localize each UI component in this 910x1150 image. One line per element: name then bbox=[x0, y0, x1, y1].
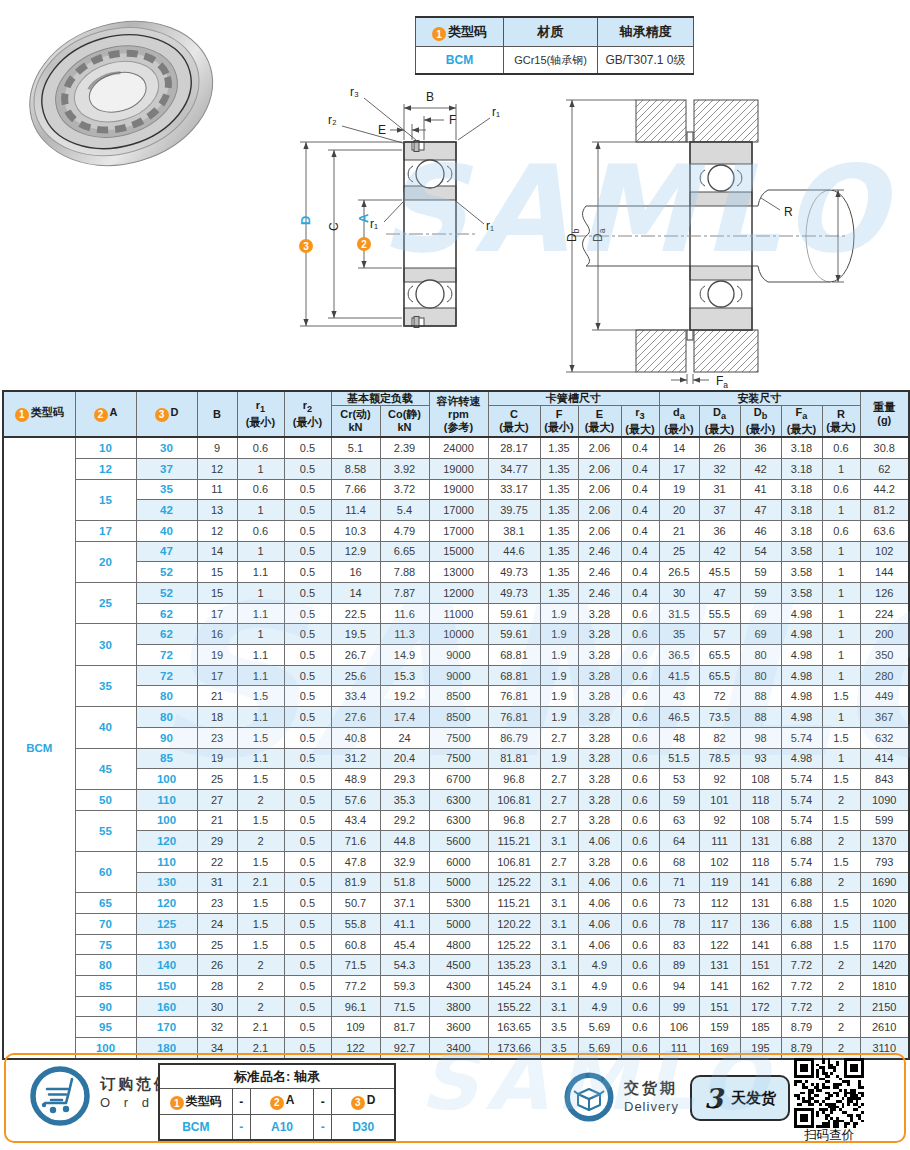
spec-value-cell: 1.5 bbox=[822, 914, 860, 935]
d-value-cell: 30 bbox=[136, 437, 197, 458]
table-row: 801402620.571.554.34500135.233.14.90.689… bbox=[3, 955, 909, 976]
table-row: 72191.10.526.714.9900068.811.93.280.636.… bbox=[3, 645, 909, 666]
spec-value-cell: 131 bbox=[699, 955, 740, 976]
info-material: GCr15(轴承钢) bbox=[504, 47, 598, 75]
spec-value-cell: 0.5 bbox=[284, 872, 331, 893]
spec-value-cell: 55.8 bbox=[331, 914, 380, 935]
spec-value-cell: 102 bbox=[699, 851, 740, 872]
d-value-cell: 72 bbox=[136, 665, 197, 686]
type-info-table: 1类型码 材质 轴承精度 BCM GCr15(轴承钢) GB/T307.1 0级 bbox=[415, 16, 694, 75]
spec-value-cell: 88 bbox=[740, 686, 781, 707]
spec-value-cell: 1090 bbox=[860, 789, 909, 810]
spec-value-cell: 59 bbox=[740, 562, 781, 583]
spec-value-cell: 7.72 bbox=[781, 955, 822, 976]
spec-value-cell: 125.22 bbox=[488, 872, 540, 893]
dim-label-Fa: Fa bbox=[716, 374, 728, 388]
spec-value-cell: 0.5 bbox=[284, 769, 331, 790]
spec-value-cell: 2 bbox=[822, 976, 860, 997]
table-row: 1740120.60.510.34.791700038.11.352.060.4… bbox=[3, 520, 909, 541]
spec-value-cell: 69 bbox=[740, 603, 781, 624]
d-value-cell: 100 bbox=[136, 769, 197, 790]
spec-value-cell: 32 bbox=[699, 458, 740, 479]
spec-value-cell: 0.6 bbox=[621, 914, 659, 935]
spec-value-cell: 2 bbox=[822, 872, 860, 893]
spec-value-cell: 108 bbox=[740, 810, 781, 831]
spec-value-cell: 151 bbox=[740, 955, 781, 976]
dim-label-Db: Db bbox=[565, 228, 581, 242]
spec-value-cell: 0.6 bbox=[237, 437, 284, 458]
spec-value-cell: 162 bbox=[740, 976, 781, 997]
spec-value-cell: 0.5 bbox=[284, 458, 331, 479]
spec-value-cell: 5.74 bbox=[781, 727, 822, 748]
a-value-cell: 45 bbox=[75, 748, 136, 789]
spec-value-cell: 2.46 bbox=[578, 562, 621, 583]
spec-value-cell: 0.6 bbox=[621, 810, 659, 831]
spec-value-cell: 2.46 bbox=[578, 541, 621, 562]
spec-value-cell: 0.6 bbox=[621, 686, 659, 707]
d-value-cell: 52 bbox=[136, 583, 197, 604]
spec-value-cell: 19 bbox=[197, 645, 237, 666]
spec-value-cell: 3.28 bbox=[578, 727, 621, 748]
spec-value-cell: 0.5 bbox=[284, 583, 331, 604]
spec-value-cell: 120.22 bbox=[488, 914, 540, 935]
table-row: 1202920.571.644.85600115.213.14.060.6641… bbox=[3, 831, 909, 852]
spec-value-cell: 3.18 bbox=[781, 437, 822, 458]
spec-value-cell: 1.1 bbox=[237, 707, 284, 728]
dim-label-E: E bbox=[378, 123, 386, 137]
spec-value-cell: 7.88 bbox=[380, 562, 429, 583]
spec-value-cell: 77.2 bbox=[331, 976, 380, 997]
table-row: 75130251.50.560.845.44800125.223.14.060.… bbox=[3, 934, 909, 955]
spec-value-cell: 1 bbox=[822, 707, 860, 728]
spec-value-cell: 5300 bbox=[429, 893, 488, 914]
d-value-cell: 62 bbox=[136, 603, 197, 624]
spec-table-header: 1类型码 2A 3D B r1(最小) r2(最小) 基本额定负载 容许转速rp… bbox=[3, 391, 909, 437]
spec-value-cell: 0.5 bbox=[284, 562, 331, 583]
spec-value-cell: 11.6 bbox=[380, 603, 429, 624]
spec-value-cell: 45.4 bbox=[380, 934, 429, 955]
spec-value-cell: 185 bbox=[740, 1017, 781, 1038]
table-row: 12371210.58.583.921900034.771.352.060.41… bbox=[3, 458, 909, 479]
a-value-cell: 30 bbox=[75, 624, 136, 665]
spec-value-cell: 1.5 bbox=[822, 810, 860, 831]
dim-label-r1-right: r₁ bbox=[486, 219, 494, 233]
delivery-days-label: 天发货 bbox=[731, 1089, 776, 1108]
spec-value-cell: 96.8 bbox=[488, 769, 540, 790]
spec-value-cell: 1100 bbox=[860, 914, 909, 935]
spec-value-cell: 0.5 bbox=[284, 851, 331, 872]
spec-value-cell: 51.8 bbox=[380, 872, 429, 893]
a-value-cell: 12 bbox=[75, 458, 136, 479]
spec-value-cell: 20.4 bbox=[380, 748, 429, 769]
spec-value-cell: 2 bbox=[237, 996, 284, 1017]
spec-value-cell: 14 bbox=[659, 437, 699, 458]
spec-value-cell: 80 bbox=[740, 665, 781, 686]
d-value-cell: 120 bbox=[136, 831, 197, 852]
a-value-cell: 40 bbox=[75, 707, 136, 748]
spec-value-cell: 0.6 bbox=[621, 769, 659, 790]
a-value-cell: 25 bbox=[75, 583, 136, 624]
bearing-photo bbox=[14, 8, 229, 178]
spec-value-cell: 72 bbox=[699, 686, 740, 707]
spec-value-cell: 35 bbox=[659, 624, 699, 645]
badge-3-icon: 3 bbox=[155, 408, 169, 422]
spec-value-cell: 89 bbox=[659, 955, 699, 976]
spec-value-cell: 0.6 bbox=[621, 1017, 659, 1038]
spec-value-cell: 126 bbox=[860, 583, 909, 604]
spec-value-cell: 17000 bbox=[429, 520, 488, 541]
spec-value-cell: 15 bbox=[197, 583, 237, 604]
spec-value-cell: 65.5 bbox=[699, 665, 740, 686]
spec-value-cell: 1.9 bbox=[540, 686, 578, 707]
spec-value-cell: 13000 bbox=[429, 562, 488, 583]
spec-value-cell: 0.6 bbox=[621, 707, 659, 728]
spec-value-cell: 0.5 bbox=[284, 976, 331, 997]
spec-value-cell: 63.6 bbox=[860, 520, 909, 541]
table-row: 421310.511.45.41700039.751.352.060.42037… bbox=[3, 500, 909, 521]
spec-value-cell: 9 bbox=[197, 437, 237, 458]
spec-value-cell: 34.77 bbox=[488, 458, 540, 479]
spec-value-cell: 2610 bbox=[860, 1017, 909, 1038]
spec-value-cell: 17 bbox=[197, 665, 237, 686]
table-row: 4080181.10.527.617.4850076.811.93.280.64… bbox=[3, 707, 909, 728]
spec-value-cell: 11 bbox=[197, 479, 237, 500]
spec-value-cell: 24000 bbox=[429, 437, 488, 458]
spec-value-cell: 3.1 bbox=[540, 934, 578, 955]
spec-value-cell: 106.81 bbox=[488, 789, 540, 810]
spec-value-cell: 2 bbox=[237, 955, 284, 976]
spec-value-cell: 2.7 bbox=[540, 769, 578, 790]
d-value-cell: 80 bbox=[136, 686, 197, 707]
svg-text:2: 2 bbox=[361, 239, 367, 250]
spec-value-cell: 1.5 bbox=[237, 810, 284, 831]
spec-value-cell: 2.7 bbox=[540, 851, 578, 872]
spec-value-cell: 131 bbox=[740, 893, 781, 914]
spec-value-cell: 47 bbox=[740, 500, 781, 521]
spec-value-cell: 3.1 bbox=[540, 914, 578, 935]
spec-value-cell: 2.7 bbox=[540, 810, 578, 831]
spec-value-cell: 6000 bbox=[429, 851, 488, 872]
spec-value-cell: 65.5 bbox=[699, 645, 740, 666]
d-value-cell: 130 bbox=[136, 872, 197, 893]
dim-label-F: F bbox=[449, 113, 456, 127]
spec-value-cell: 25 bbox=[197, 934, 237, 955]
spec-value-cell: 44.2 bbox=[860, 479, 909, 500]
spec-value-cell: 23 bbox=[197, 893, 237, 914]
spec-value-cell: 0.6 bbox=[237, 520, 284, 541]
spec-value-cell: 106.81 bbox=[488, 851, 540, 872]
table-row: 901603020.596.171.53800155.223.14.90.699… bbox=[3, 996, 909, 1017]
spec-value-cell: 3.1 bbox=[540, 893, 578, 914]
spec-value-cell: 1.5 bbox=[237, 727, 284, 748]
spec-value-cell: 36 bbox=[699, 520, 740, 541]
spec-value-cell: 46.5 bbox=[659, 707, 699, 728]
spec-value-cell: 1.35 bbox=[540, 437, 578, 458]
spec-value-cell: 38.1 bbox=[488, 520, 540, 541]
spec-value-cell: 0.5 bbox=[284, 893, 331, 914]
spec-value-cell: 0.5 bbox=[284, 955, 331, 976]
spec-value-cell: 2.46 bbox=[578, 583, 621, 604]
spec-value-cell: 118 bbox=[740, 789, 781, 810]
d-value-cell: 110 bbox=[136, 789, 197, 810]
spec-value-cell: 0.5 bbox=[284, 541, 331, 562]
spec-value-cell: 3.5 bbox=[540, 1017, 578, 1038]
a-value-cell: 95 bbox=[75, 1017, 136, 1038]
group-header-snap-ring: 卡簧槽尺寸 bbox=[488, 391, 659, 406]
spec-value-cell: 29 bbox=[197, 831, 237, 852]
spec-value-cell: 0.5 bbox=[284, 996, 331, 1017]
spec-value-cell: 0.5 bbox=[284, 603, 331, 624]
table-row: 3572171.10.525.615.3900068.811.93.280.64… bbox=[3, 665, 909, 686]
table-row: 52151.10.5167.881300049.731.352.460.426.… bbox=[3, 562, 909, 583]
spec-value-cell: 1420 bbox=[860, 955, 909, 976]
spec-value-cell: 0.5 bbox=[284, 934, 331, 955]
spec-value-cell: 3.28 bbox=[578, 645, 621, 666]
info-header-precision: 轴承精度 bbox=[598, 17, 694, 47]
spec-value-cell: 3.28 bbox=[578, 748, 621, 769]
spec-value-cell: 76.81 bbox=[488, 686, 540, 707]
spec-value-cell: 41.5 bbox=[659, 665, 699, 686]
spec-value-cell: 3600 bbox=[429, 1017, 488, 1038]
delivery-cn: 交货期 bbox=[624, 1078, 679, 1098]
spec-value-cell: 1.5 bbox=[822, 686, 860, 707]
col-header-weight: 重量(g) bbox=[860, 391, 909, 437]
spec-value-cell: 1.1 bbox=[237, 645, 284, 666]
spec-value-cell: 24 bbox=[380, 727, 429, 748]
spec-value-cell: 14.9 bbox=[380, 645, 429, 666]
d-value-cell: 170 bbox=[136, 1017, 197, 1038]
spec-value-cell: 1 bbox=[237, 541, 284, 562]
d-value-cell: 160 bbox=[136, 996, 197, 1017]
spec-value-cell: 3.58 bbox=[781, 583, 822, 604]
spec-value-cell: 24 bbox=[197, 914, 237, 935]
a-value-cell: 80 bbox=[75, 955, 136, 976]
spec-value-cell: 46 bbox=[740, 520, 781, 541]
spec-value-cell: 0.6 bbox=[621, 665, 659, 686]
qr-code bbox=[794, 1058, 864, 1128]
spec-value-cell: 135.23 bbox=[488, 955, 540, 976]
spec-value-cell: 200 bbox=[860, 624, 909, 645]
spec-value-cell: 76.81 bbox=[488, 707, 540, 728]
spec-value-cell: 17 bbox=[197, 603, 237, 624]
spec-value-cell: 1.1 bbox=[237, 665, 284, 686]
spec-value-cell: 102 bbox=[860, 541, 909, 562]
spec-value-cell: 11.3 bbox=[380, 624, 429, 645]
spec-value-cell: 49.73 bbox=[488, 583, 540, 604]
spec-value-cell: 0.5 bbox=[284, 727, 331, 748]
d-value-cell: 150 bbox=[136, 976, 197, 997]
d-value-cell: 140 bbox=[136, 955, 197, 976]
spec-value-cell: 36.5 bbox=[659, 645, 699, 666]
spec-value-cell: 3.1 bbox=[540, 872, 578, 893]
spec-value-cell: 0.5 bbox=[284, 500, 331, 521]
table-row: 55100211.50.543.429.2630096.82.73.280.66… bbox=[3, 810, 909, 831]
spec-value-cell: 19000 bbox=[429, 479, 488, 500]
spec-value-cell: 31 bbox=[699, 479, 740, 500]
spec-value-cell: 40.8 bbox=[331, 727, 380, 748]
spec-value-cell: 141 bbox=[740, 934, 781, 955]
spec-value-cell: 1 bbox=[822, 583, 860, 604]
a-value-cell: 85 bbox=[75, 976, 136, 997]
spec-value-cell: 0.5 bbox=[284, 707, 331, 728]
spec-value-cell: 0.6 bbox=[621, 872, 659, 893]
spec-value-cell: 96.8 bbox=[488, 810, 540, 831]
spec-value-cell: 62 bbox=[860, 458, 909, 479]
spec-value-cell: 28 bbox=[197, 976, 237, 997]
col-header-co: Co(静)kN bbox=[380, 406, 429, 438]
bearing-section-drawing: B F E r₃ r₂ r₁ r₁ r₁ C 3 D 2 A bbox=[292, 78, 532, 386]
order-value-code: BCM bbox=[159, 1115, 232, 1141]
a-value-cell: 50 bbox=[75, 789, 136, 810]
dim-label-B: B bbox=[426, 90, 434, 104]
spec-value-cell: 101 bbox=[699, 789, 740, 810]
spec-value-cell: 0.6 bbox=[621, 645, 659, 666]
spec-value-cell: 117 bbox=[699, 914, 740, 935]
spec-value-cell: 49.73 bbox=[488, 562, 540, 583]
spec-value-cell: 6.88 bbox=[781, 872, 822, 893]
col-header-r3: r3(最大) bbox=[621, 406, 659, 438]
spec-value-cell: 47 bbox=[699, 583, 740, 604]
spec-value-cell: 3.28 bbox=[578, 665, 621, 686]
delivery-label: 交货期 Delivery bbox=[624, 1078, 679, 1116]
spec-value-cell: 5.1 bbox=[331, 437, 380, 458]
spec-value-cell: 4500 bbox=[429, 955, 488, 976]
spec-value-cell: 8.58 bbox=[331, 458, 380, 479]
spec-value-cell: 26.7 bbox=[331, 645, 380, 666]
d-value-cell: 120 bbox=[136, 893, 197, 914]
spec-value-cell: 1 bbox=[237, 458, 284, 479]
spec-value-cell: 73.5 bbox=[699, 707, 740, 728]
a-value-cell: 55 bbox=[75, 810, 136, 851]
spec-value-cell: 1 bbox=[822, 748, 860, 769]
spec-value-cell: 122 bbox=[699, 934, 740, 955]
spec-value-cell: 224 bbox=[860, 603, 909, 624]
spec-value-cell: 26 bbox=[197, 955, 237, 976]
spec-value-cell: 632 bbox=[860, 727, 909, 748]
a-value-cell: 65 bbox=[75, 893, 136, 914]
spec-value-cell: 25 bbox=[659, 541, 699, 562]
spec-value-cell: 29.3 bbox=[380, 769, 429, 790]
spec-value-cell: 14 bbox=[331, 583, 380, 604]
spec-value-cell: 119 bbox=[699, 872, 740, 893]
spec-value-cell: 22.5 bbox=[331, 603, 380, 624]
spec-value-cell: 2 bbox=[822, 831, 860, 852]
spec-value-cell: 1170 bbox=[860, 934, 909, 955]
spec-value-cell: 68.81 bbox=[488, 665, 540, 686]
table-row: BCM103090.60.55.12.392400028.171.352.060… bbox=[3, 437, 909, 458]
spec-value-cell: 1.35 bbox=[540, 562, 578, 583]
spec-value-cell: 112 bbox=[699, 893, 740, 914]
spec-value-cell: 64 bbox=[659, 831, 699, 852]
spec-value-cell: 414 bbox=[860, 748, 909, 769]
spec-value-cell: 3.18 bbox=[781, 500, 822, 521]
spec-value-cell: 5.74 bbox=[781, 810, 822, 831]
spec-value-cell: 32.9 bbox=[380, 851, 429, 872]
col-header-c: C(最大) bbox=[488, 406, 540, 438]
cart-icon bbox=[28, 1064, 92, 1128]
spec-value-cell: 44.8 bbox=[380, 831, 429, 852]
order-dash: - bbox=[314, 1089, 332, 1115]
spec-value-cell: 4.9 bbox=[578, 996, 621, 1017]
svg-text:3: 3 bbox=[303, 241, 309, 252]
spec-value-cell: 2 bbox=[822, 996, 860, 1017]
spec-value-cell: 51.5 bbox=[659, 748, 699, 769]
col-header-cr: Cr(动)kN bbox=[331, 406, 380, 438]
spec-value-cell: 1.5 bbox=[237, 851, 284, 872]
spec-value-cell: 4.06 bbox=[578, 831, 621, 852]
delivery-days: 3 bbox=[704, 1083, 723, 1114]
spec-value-cell: 280 bbox=[860, 665, 909, 686]
table-row: 851502820.577.259.34300145.243.14.90.694… bbox=[3, 976, 909, 997]
spec-value-cell: 37 bbox=[699, 500, 740, 521]
spec-value-cell: 2 bbox=[822, 1017, 860, 1038]
spec-value-cell: 108 bbox=[740, 769, 781, 790]
spec-value-cell: 0.6 bbox=[237, 479, 284, 500]
spec-value-cell: 22 bbox=[197, 851, 237, 872]
spec-value-cell: 2.06 bbox=[578, 437, 621, 458]
col-header-R: R(最大) bbox=[822, 406, 860, 438]
d-value-cell: 125 bbox=[136, 914, 197, 935]
info-type-code: BCM bbox=[416, 47, 504, 75]
col-header-type-code: 1类型码 bbox=[3, 391, 75, 437]
spec-value-cell: 2 bbox=[237, 976, 284, 997]
col-header-d: 3D bbox=[136, 391, 197, 437]
spec-value-cell: 7.72 bbox=[781, 996, 822, 1017]
spec-value-cell: 19000 bbox=[429, 458, 488, 479]
spec-value-cell: 78.5 bbox=[699, 748, 740, 769]
col-header-a: 2A bbox=[75, 391, 136, 437]
table-row: 501102720.557.635.36300106.812.73.280.65… bbox=[3, 789, 909, 810]
spec-value-cell: 4.06 bbox=[578, 872, 621, 893]
spec-value-cell: 4.98 bbox=[781, 686, 822, 707]
spec-value-cell: 1.9 bbox=[540, 603, 578, 624]
spec-value-cell: 39.75 bbox=[488, 500, 540, 521]
spec-value-cell: 0.6 bbox=[621, 996, 659, 1017]
spec-value-cell: 23 bbox=[197, 727, 237, 748]
spec-value-cell: 13 bbox=[197, 500, 237, 521]
spec-value-cell: 3.28 bbox=[578, 686, 621, 707]
d-value-cell: 72 bbox=[136, 645, 197, 666]
d-value-cell: 85 bbox=[136, 748, 197, 769]
spec-value-cell: 0.4 bbox=[621, 437, 659, 458]
spec-value-cell: 92 bbox=[699, 769, 740, 790]
spec-value-cell: 0.4 bbox=[621, 520, 659, 541]
d-value-cell: 37 bbox=[136, 458, 197, 479]
spec-value-cell: 1 bbox=[237, 583, 284, 604]
spec-value-cell: 1.35 bbox=[540, 458, 578, 479]
spec-value-cell: 44.6 bbox=[488, 541, 540, 562]
spec-value-cell: 4.06 bbox=[578, 934, 621, 955]
a-value-cell: 35 bbox=[75, 665, 136, 706]
spec-value-cell: 1370 bbox=[860, 831, 909, 852]
spec-value-cell: 172 bbox=[740, 996, 781, 1017]
spec-value-cell: 0.6 bbox=[822, 520, 860, 541]
spec-value-cell: 7500 bbox=[429, 748, 488, 769]
spec-value-cell: 0.5 bbox=[284, 810, 331, 831]
delivery-en: Delivery bbox=[624, 1098, 679, 1116]
spec-value-cell: 30 bbox=[197, 996, 237, 1017]
spec-value-cell: 33.17 bbox=[488, 479, 540, 500]
col-header-r2: r2(最小) bbox=[284, 391, 331, 437]
spec-value-cell: 111 bbox=[699, 831, 740, 852]
spec-value-cell: 48.9 bbox=[331, 769, 380, 790]
dim-label-r1-top: r₁ bbox=[492, 105, 500, 119]
spec-value-cell: 7.72 bbox=[781, 976, 822, 997]
spec-value-cell: 0.5 bbox=[284, 1017, 331, 1038]
table-row: 20471410.512.96.651500044.61.352.460.425… bbox=[3, 541, 909, 562]
spec-value-cell: 1020 bbox=[860, 893, 909, 914]
spec-value-cell: 1.1 bbox=[237, 562, 284, 583]
